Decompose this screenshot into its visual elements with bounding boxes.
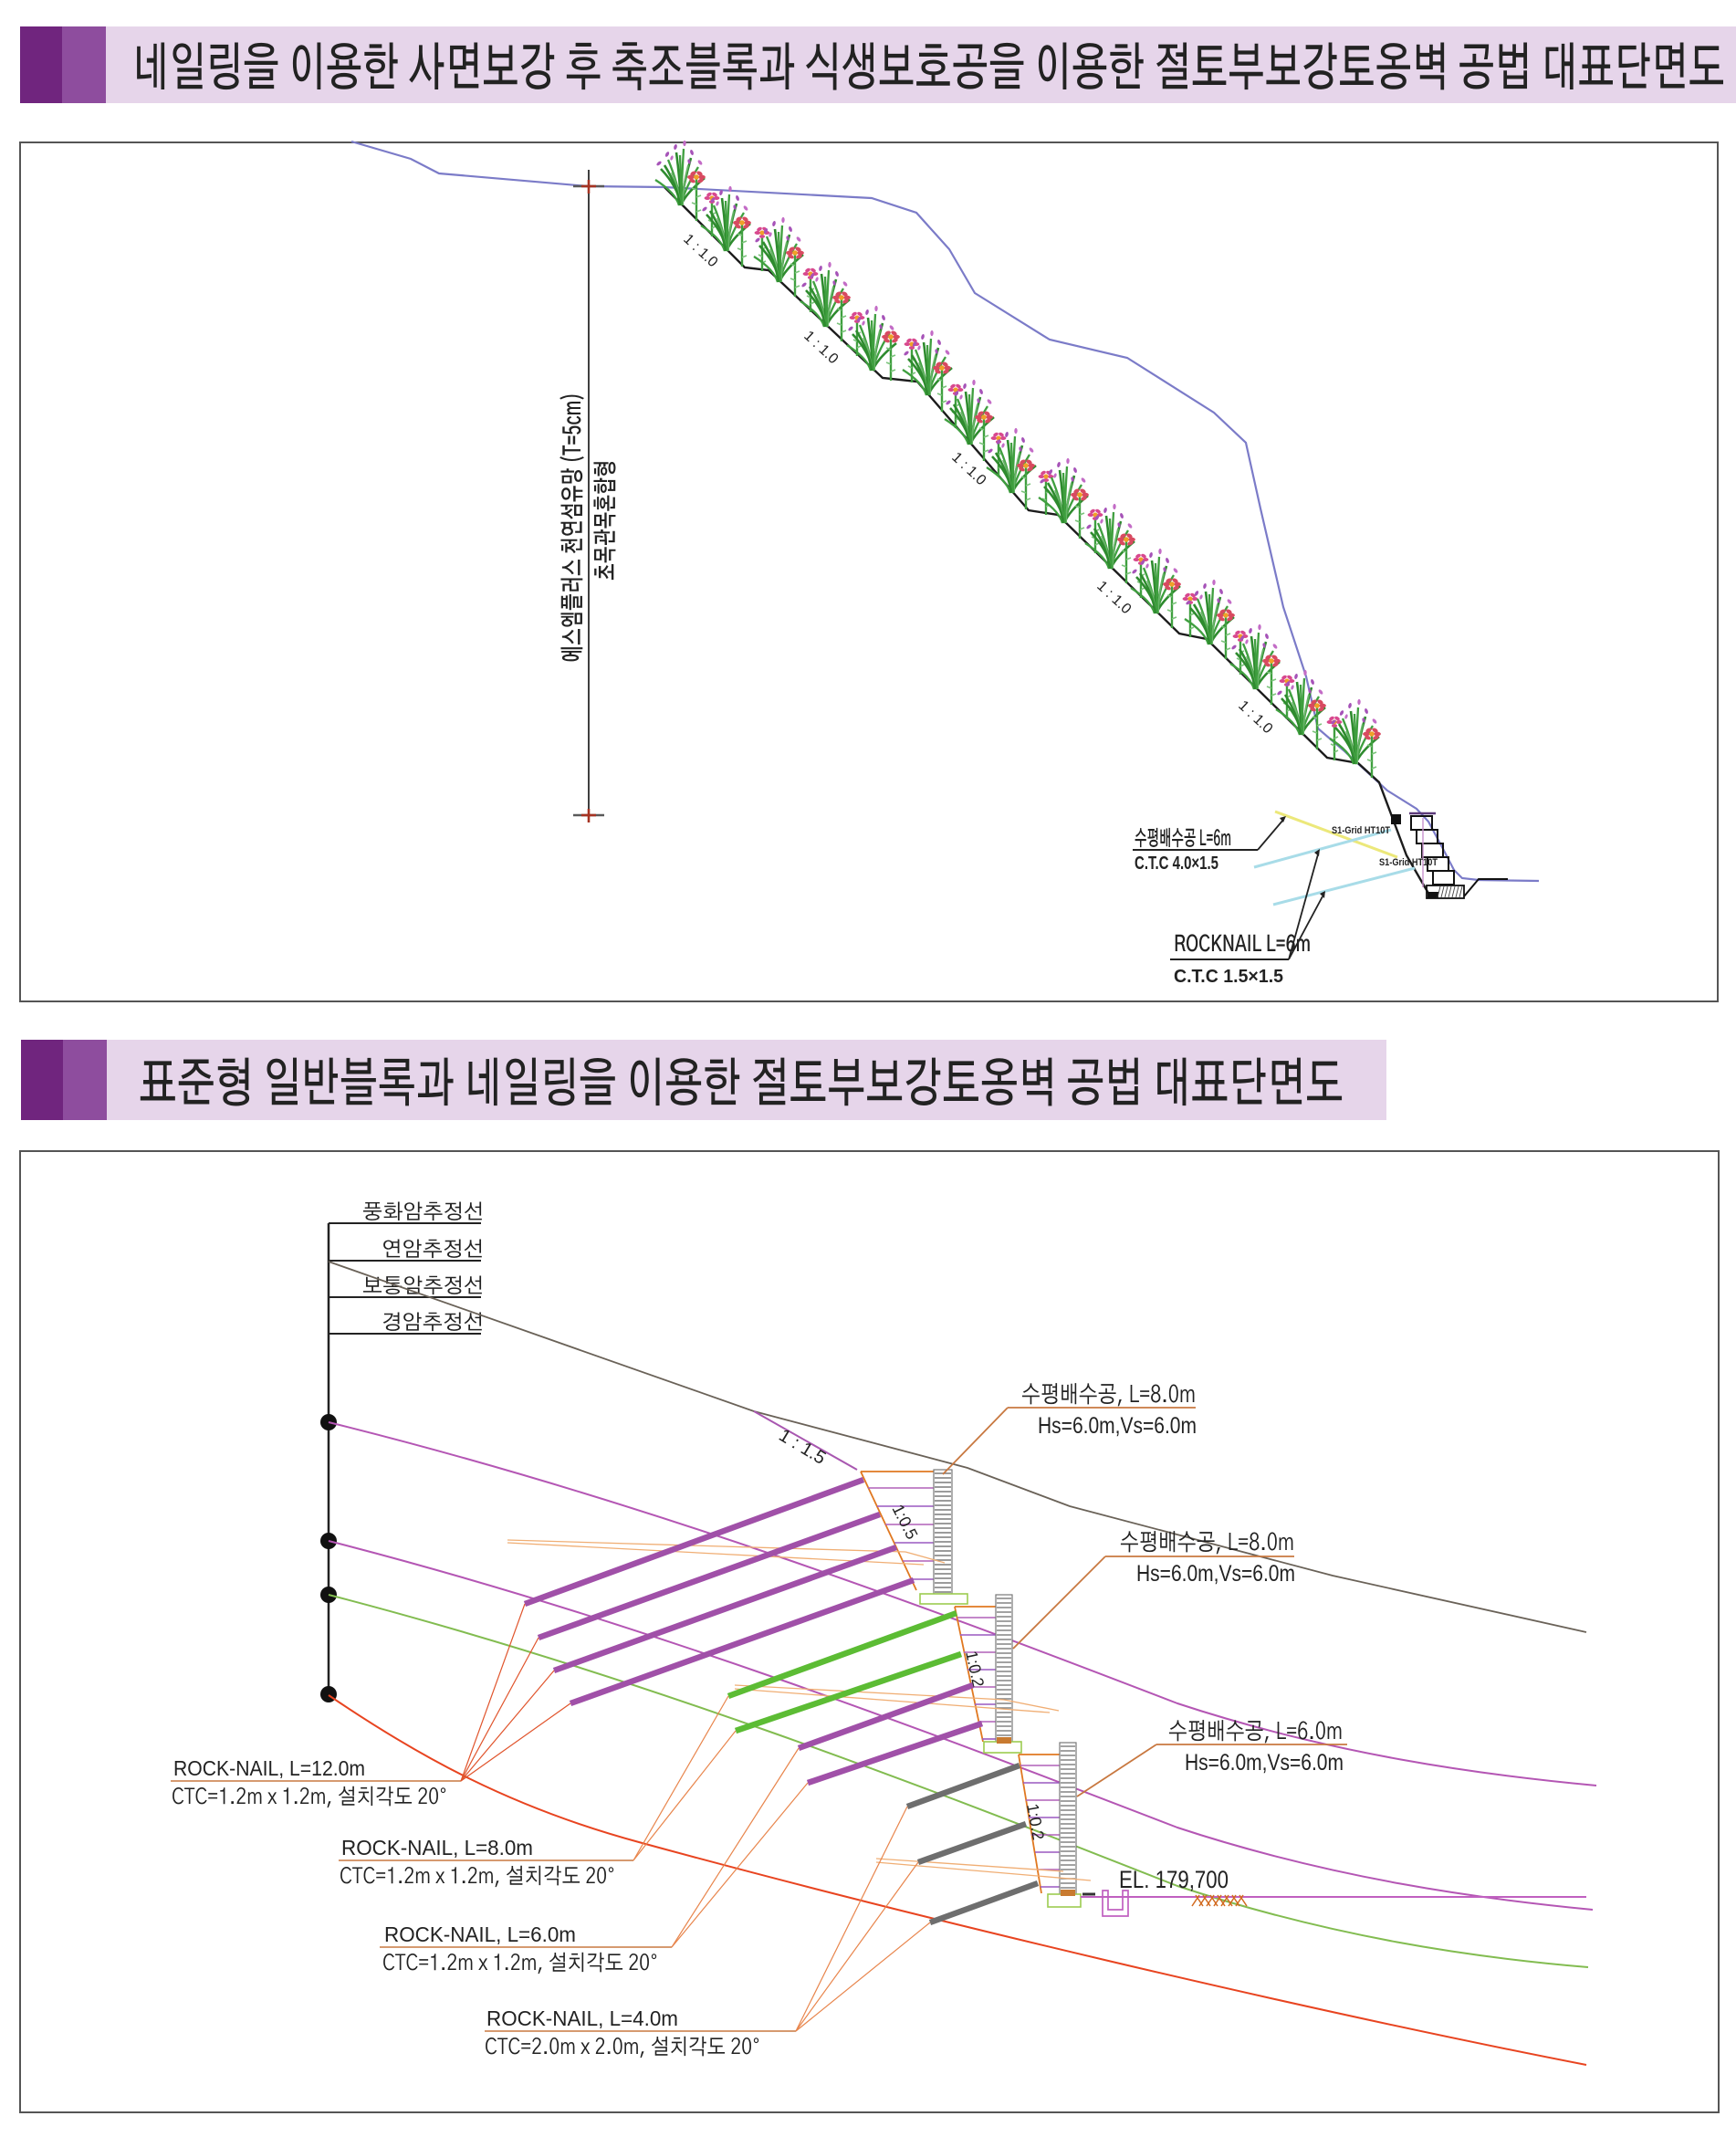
svg-text:1:0.2: 1:0.2 xyxy=(1023,1802,1048,1841)
svg-text:C.T.C 4.0×1.5: C.T.C 4.0×1.5 xyxy=(1135,854,1218,874)
svg-text:ROCK-NAIL, L=8.0m: ROCK-NAIL, L=8.0m xyxy=(341,1836,533,1859)
svg-text:S1-Grid HT10T: S1-Grid HT10T xyxy=(1332,825,1390,836)
svg-text:1 : 1.0: 1 : 1.0 xyxy=(1235,697,1275,737)
svg-text:Hs=6.0m,Vs=6.0m: Hs=6.0m,Vs=6.0m xyxy=(1136,1561,1295,1587)
svg-text:1:0.5: 1:0.5 xyxy=(888,1502,921,1543)
svg-text:ROCK-NAIL, L=4.0m: ROCK-NAIL, L=4.0m xyxy=(486,2006,678,2030)
svg-text:Hs=6.0m,Vs=6.0m: Hs=6.0m,Vs=6.0m xyxy=(1185,1750,1344,1776)
svg-text:S1-Grid HT10T: S1-Grid HT10T xyxy=(1379,857,1438,868)
svg-text:Hs=6.0m,Vs=6.0m: Hs=6.0m,Vs=6.0m xyxy=(1038,1413,1197,1439)
svg-text:1:0.2: 1:0.2 xyxy=(962,1650,988,1689)
svg-text:C.T.C 1.5×1.5: C.T.C 1.5×1.5 xyxy=(1174,967,1283,987)
svg-text:1 : 1.5: 1 : 1.5 xyxy=(775,1425,829,1468)
svg-text:ROCK-NAIL, L=12.0m: ROCK-NAIL, L=12.0m xyxy=(173,1756,365,1780)
svg-text:ROCK-NAIL, L=6.0m: ROCK-NAIL, L=6.0m xyxy=(384,1922,576,1946)
svg-text:EL. 179,700: EL. 179,700 xyxy=(1119,1866,1229,1893)
